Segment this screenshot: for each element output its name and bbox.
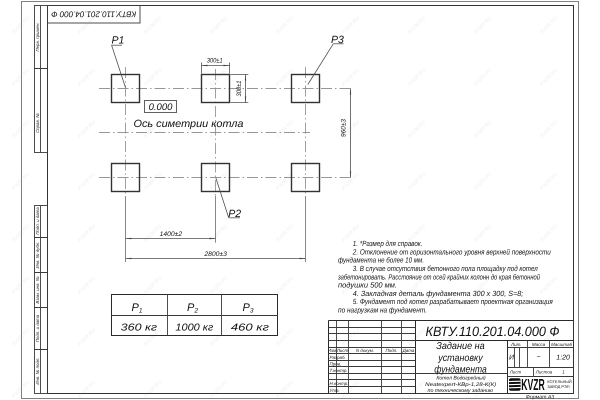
svg-text:1400±2: 1400±2 xyxy=(160,231,183,238)
svg-text:0.000: 0.000 xyxy=(149,102,173,113)
svg-text:300±1: 300±1 xyxy=(207,57,223,64)
svg-text:Перв. примен.: Перв. примен. xyxy=(35,22,40,51)
svg-text:Разраб.: Разраб. xyxy=(330,355,346,360)
svg-text:КВТУ.110.201.04.000 Ф: КВТУ.110.201.04.000 Ф xyxy=(51,10,136,19)
svg-text:Лист: Лист xyxy=(336,348,349,353)
svg-text:Листов: Листов xyxy=(535,370,553,375)
svg-text:Р1: Р1 xyxy=(112,35,125,47)
svg-text:Т.контр.: Т.контр. xyxy=(330,368,348,373)
svg-text:КВТУ.110.201.04.000 Ф: КВТУ.110.201.04.000 Ф xyxy=(426,324,560,339)
svg-text:Котел Водогрейный: Котел Водогрейный xyxy=(436,376,485,382)
svg-text:Формат А3: Формат А3 xyxy=(526,394,554,400)
svg-text:установку: установку xyxy=(437,353,483,364)
svg-text:1:20: 1:20 xyxy=(556,355,570,362)
svg-text:фундамента: фундамента xyxy=(434,365,487,376)
svg-text:Масса: Масса xyxy=(532,342,546,347)
svg-text:Задание на: Задание на xyxy=(436,341,485,352)
svg-text:Справ. №: Справ. № xyxy=(35,113,40,133)
svg-text:Лит.: Лит. xyxy=(510,342,522,347)
svg-text:460 кг: 460 кг xyxy=(231,322,269,333)
svg-text:по нагрузкам на фундамент.: по нагрузкам на фундамент. xyxy=(338,306,427,315)
svg-text:300±1: 300±1 xyxy=(236,80,243,96)
svg-text:Neatexpert-КВр-1,28-К(К): Neatexpert-КВр-1,28-К(К) xyxy=(425,382,496,388)
svg-text:Инв. № дубл.: Инв. № дубл. xyxy=(35,241,40,268)
svg-text:по техническому заданию: по техническому заданию xyxy=(428,388,494,394)
svg-text:2800±3: 2800±3 xyxy=(203,251,227,258)
svg-text:−: − xyxy=(537,354,541,361)
svg-text:Подп. и дата: Подп. и дата xyxy=(35,207,40,235)
svg-text:Подп. и дата: Подп. и дата xyxy=(35,314,40,342)
svg-text:N докум.: N докум. xyxy=(356,348,374,353)
svg-text:960±3: 960±3 xyxy=(340,119,347,137)
svg-text:Масштаб: Масштаб xyxy=(551,342,572,347)
svg-text:Утв.: Утв. xyxy=(330,388,340,393)
svg-text:Р3: Р3 xyxy=(331,34,344,46)
svg-text:Подп.: Подп. xyxy=(386,348,398,353)
svg-text:ЗАВОД РЭП: ЗАВОД РЭП xyxy=(547,384,569,389)
svg-text:Взам. инв. №: Взам. инв. № xyxy=(35,276,40,303)
svg-text:KVZR: KVZR xyxy=(521,377,545,394)
svg-text:Н.контр.: Н.контр. xyxy=(330,381,349,386)
svg-text:1000 кг: 1000 кг xyxy=(175,322,213,333)
svg-text:Дата: Дата xyxy=(402,348,415,353)
svg-text:360 кг: 360 кг xyxy=(121,322,157,333)
svg-text:Ось симетрии котла: Ось симетрии котла xyxy=(134,118,244,130)
svg-text:Пров.: Пров. xyxy=(330,361,342,366)
svg-text:Инв. № подл.: Инв. № подл. xyxy=(35,357,40,384)
svg-text:Лист: Лист xyxy=(509,370,522,375)
svg-text:Р2: Р2 xyxy=(228,208,241,220)
